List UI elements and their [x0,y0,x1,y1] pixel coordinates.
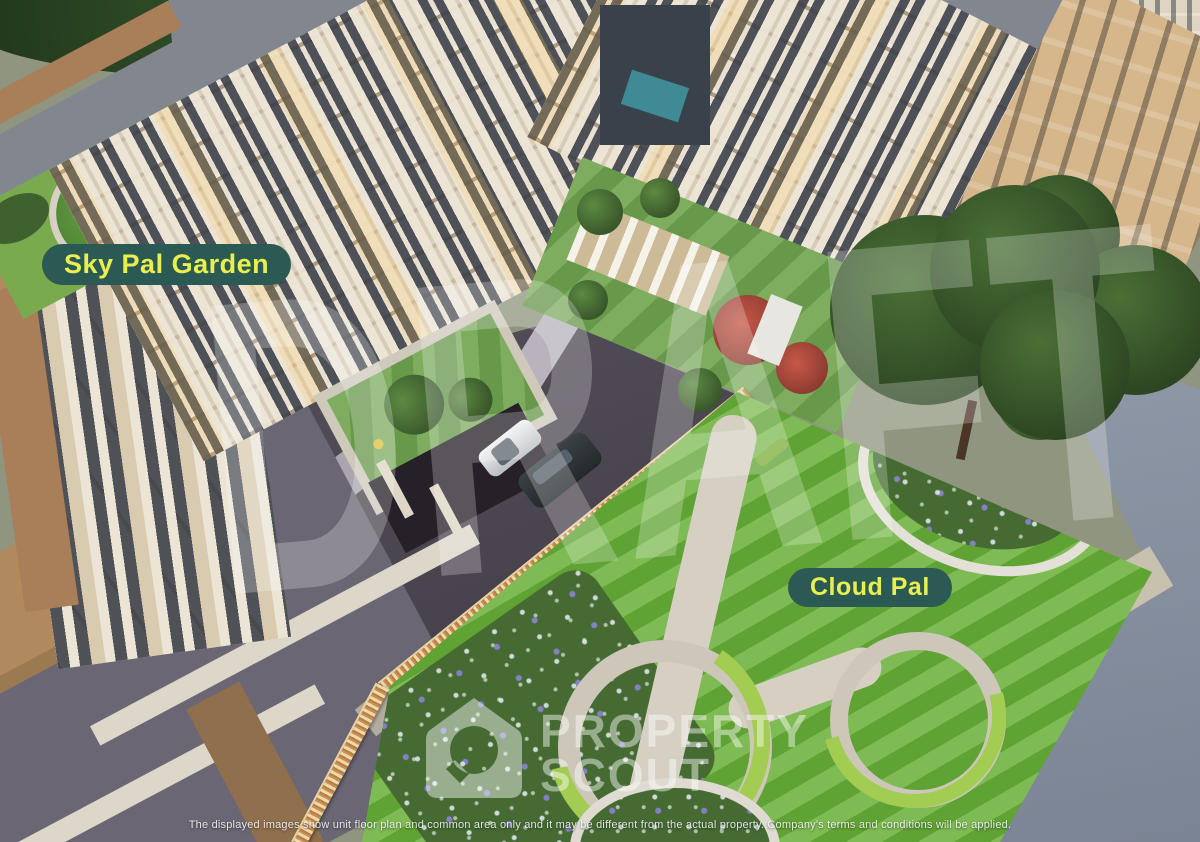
brand-line2: SCOUT [540,754,809,798]
rendering-canvas: DRAFT Sky Pal Garden Cloud Pal PROPERTY … [0,0,1200,842]
brand-line1: PROPERTY [540,710,809,754]
sky-pal-garden-label: Sky Pal Garden [64,249,269,279]
disclaimer-text: The displayed images show unit floor pla… [0,819,1200,831]
entrance-recess [600,5,710,145]
draft-watermark: DRAFT [187,158,1189,661]
cloud-pal-label: Cloud Pal [810,573,930,601]
cloud-pal-badge: Cloud Pal [788,568,952,607]
sky-pal-garden-badge: Sky Pal Garden [42,244,291,285]
house-magnifier-icon [424,696,524,800]
property-scout-watermark: PROPERTY SCOUT [424,696,809,800]
